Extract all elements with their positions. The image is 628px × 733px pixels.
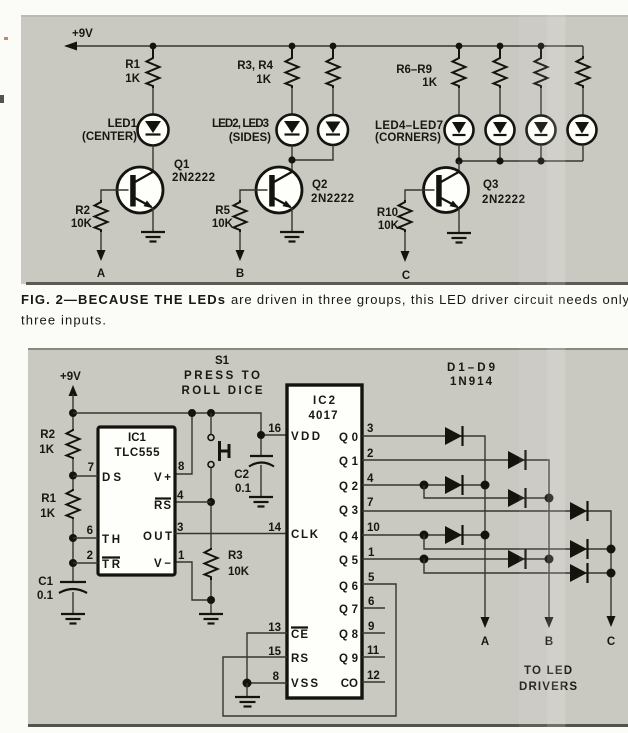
svg-text:3: 3: [177, 522, 183, 534]
svg-text:C2: C2: [234, 469, 249, 481]
svg-text:D1–D9: D1–D9: [447, 362, 495, 374]
svg-text:Q2: Q2: [312, 179, 327, 191]
svg-text:8: 8: [273, 671, 280, 683]
svg-text:1: 1: [178, 550, 185, 562]
svg-text:RS: RS: [154, 500, 171, 512]
svg-text:0.1: 0.1: [235, 483, 252, 495]
svg-text:RS: RS: [291, 653, 308, 665]
svg-text:C: C: [607, 636, 615, 648]
svg-text:16: 16: [268, 423, 281, 435]
svg-text:9: 9: [368, 621, 374, 633]
svg-text:Q3: Q3: [483, 179, 498, 191]
svg-text:1N914: 1N914: [450, 376, 493, 388]
svg-text:VDD: VDD: [291, 431, 320, 443]
svg-text:A: A: [97, 268, 105, 280]
svg-text:R2: R2: [75, 205, 90, 217]
svg-text:10K: 10K: [378, 220, 400, 232]
svg-text:C1: C1: [38, 576, 53, 588]
svg-text:C: C: [402, 270, 410, 282]
svg-text:1: 1: [368, 547, 375, 559]
svg-text:LED2, LED3: LED2, LED3: [212, 118, 269, 130]
svg-text:13: 13: [268, 622, 281, 634]
svg-text:R3, R4: R3, R4: [237, 60, 273, 72]
svg-text:10: 10: [367, 522, 380, 534]
svg-text:2N2222: 2N2222: [311, 193, 354, 205]
svg-text:(SIDES): (SIDES): [229, 132, 271, 144]
svg-text:OUT: OUT: [143, 531, 172, 543]
svg-text:7: 7: [88, 462, 94, 474]
svg-text:R1: R1: [41, 493, 56, 505]
svg-text:3: 3: [367, 423, 373, 435]
svg-text:1K: 1K: [256, 74, 271, 86]
svg-text:(CORNERS): (CORNERS): [375, 132, 441, 144]
svg-text:R5: R5: [215, 205, 230, 217]
svg-text:2: 2: [367, 448, 373, 460]
svg-text:R6–R9: R6–R9: [396, 64, 432, 76]
svg-text:Q1: Q1: [174, 159, 190, 171]
svg-text:TLC555: TLC555: [115, 447, 161, 459]
svg-text:0.1: 0.1: [37, 590, 54, 602]
svg-text:CE: CE: [291, 629, 308, 641]
svg-text:CO: CO: [341, 678, 358, 690]
svg-text:TR: TR: [102, 559, 121, 571]
svg-text:IC1: IC1: [128, 432, 147, 444]
svg-text:11: 11: [367, 645, 380, 657]
svg-text:4017: 4017: [309, 410, 338, 422]
svg-text:1K: 1K: [39, 444, 54, 456]
svg-text:15: 15: [268, 646, 281, 658]
svg-text:5: 5: [368, 572, 375, 584]
svg-text:4: 4: [367, 473, 374, 485]
svg-text:B: B: [236, 268, 244, 280]
svg-text:R1: R1: [125, 59, 140, 71]
svg-text:1K: 1K: [125, 73, 140, 85]
svg-text:+9V: +9V: [72, 28, 93, 40]
svg-text:R2: R2: [40, 429, 55, 441]
svg-text:LED4–LED7: LED4–LED7: [375, 120, 443, 132]
svg-text:2: 2: [87, 550, 93, 562]
svg-text:+9V: +9V: [60, 371, 81, 383]
svg-text:(CENTER): (CENTER): [82, 131, 137, 143]
svg-text:10K: 10K: [71, 218, 93, 230]
svg-text:CLK: CLK: [291, 529, 319, 541]
svg-text:LED1: LED1: [108, 118, 138, 130]
svg-text:4: 4: [177, 490, 184, 502]
svg-text:1K: 1K: [40, 508, 55, 520]
svg-text:12: 12: [367, 670, 380, 682]
svg-text:14: 14: [268, 522, 281, 534]
svg-text:ROLL DICE: ROLL DICE: [182, 385, 263, 397]
svg-text:10K: 10K: [212, 218, 234, 230]
svg-text:1K: 1K: [422, 77, 437, 89]
svg-text:TH: TH: [102, 534, 120, 546]
svg-text:R3: R3: [228, 550, 243, 562]
svg-text:8: 8: [178, 461, 185, 473]
svg-text:R10: R10: [377, 207, 398, 219]
svg-text:S1: S1: [215, 355, 230, 367]
svg-text:three inputs.: three inputs.: [21, 313, 106, 328]
svg-text:10K: 10K: [228, 566, 250, 578]
svg-text:6: 6: [368, 596, 374, 608]
svg-text:VSS: VSS: [291, 678, 318, 690]
svg-text:2N2222: 2N2222: [482, 194, 525, 206]
svg-text:A: A: [481, 636, 489, 648]
svg-text:2N2222: 2N2222: [172, 172, 215, 184]
svg-text:6: 6: [87, 525, 93, 537]
svg-text:7: 7: [367, 497, 373, 509]
